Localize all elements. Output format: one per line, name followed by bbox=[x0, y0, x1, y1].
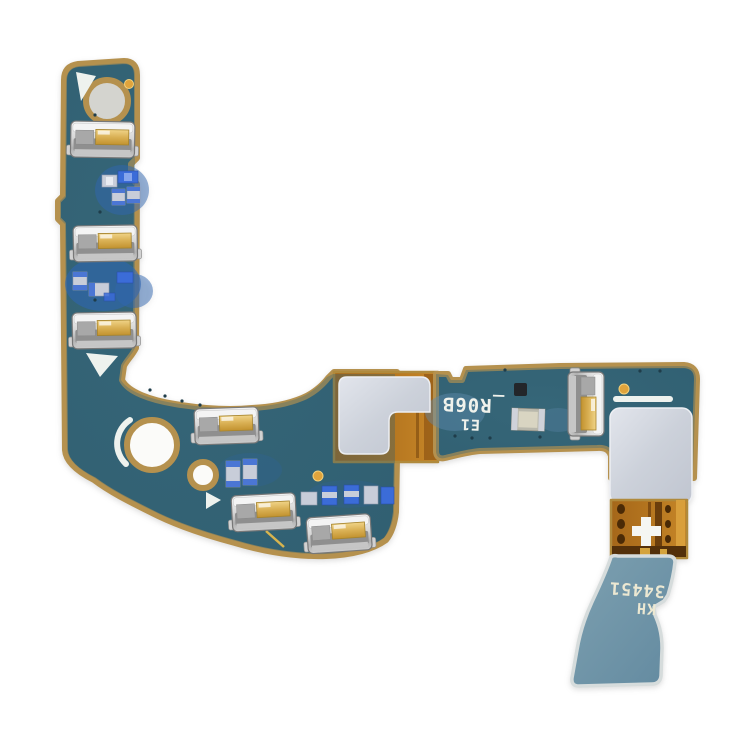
spring-contact bbox=[66, 121, 139, 158]
spring-contact bbox=[190, 407, 263, 445]
board-marking-text: E1 bbox=[460, 415, 481, 434]
arm-capacitor bbox=[511, 408, 545, 431]
kapton-gold-edge bbox=[676, 500, 685, 550]
board-marking-text: _R06B bbox=[442, 392, 505, 416]
black-chip bbox=[514, 383, 527, 396]
protective-sticker-right bbox=[610, 408, 692, 504]
kapton-lower-section bbox=[611, 500, 687, 558]
spring-contact bbox=[302, 513, 376, 554]
spring-contact bbox=[68, 312, 141, 349]
flex-tail: 34451 KH bbox=[572, 556, 675, 686]
flex-cable-photo: _R06B E1 bbox=[0, 0, 750, 750]
tail-shape bbox=[572, 556, 675, 686]
spring-contact bbox=[227, 492, 301, 532]
tail-marking-text: KH bbox=[635, 599, 656, 618]
spring-contact bbox=[69, 225, 142, 262]
silk-line bbox=[613, 396, 673, 402]
kapton-trace bbox=[655, 502, 662, 548]
spring-contact bbox=[568, 368, 604, 440]
product-photo: _R06B E1 bbox=[0, 0, 750, 750]
tail-marking-text: 34451 bbox=[608, 577, 665, 601]
